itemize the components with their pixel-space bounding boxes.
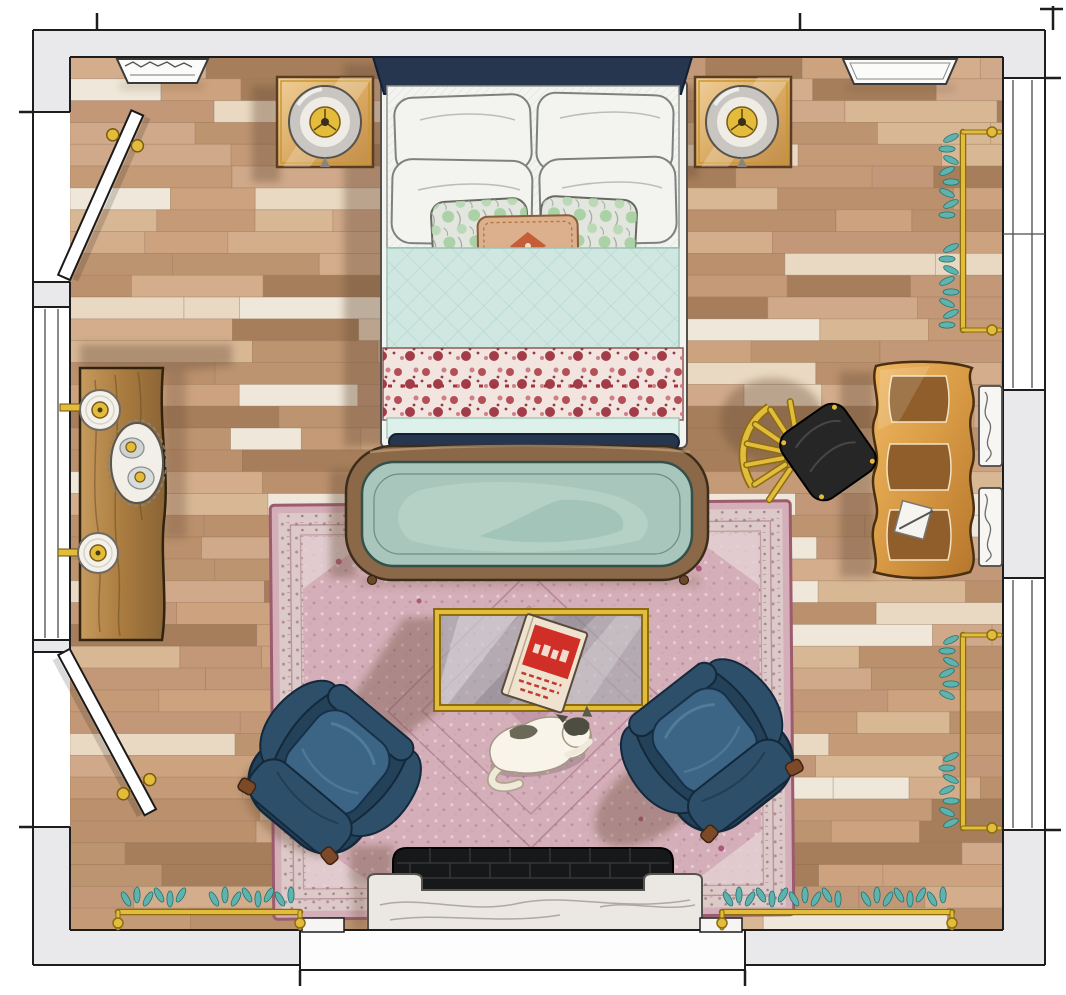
coffee-table: [437, 612, 645, 713]
floor-plank: [70, 821, 256, 843]
rail-knob: [987, 325, 997, 335]
floor-plank: [70, 319, 233, 341]
wall-left-2: [33, 282, 70, 307]
foliage-leaf: [939, 648, 955, 654]
bay-jamb-left: [302, 918, 344, 932]
wall-left-1: [33, 57, 70, 112]
floor-plank: [784, 712, 857, 734]
rail-knob: [987, 127, 997, 137]
floor-plank: [872, 166, 933, 188]
floor-plank: [980, 57, 1003, 79]
rail-knob: [987, 630, 997, 640]
floor-plank: [793, 843, 962, 865]
wall-shelf-right: [843, 59, 957, 84]
floor-plank: [70, 799, 260, 821]
floor-plank: [184, 297, 240, 319]
fireplace: [368, 848, 702, 930]
floor-plank: [145, 232, 228, 254]
foliage-leaf: [835, 891, 841, 907]
floor-plank: [845, 101, 997, 123]
foliage-leaf: [939, 146, 955, 152]
floor-plank: [751, 341, 880, 363]
foliage-leaf: [736, 887, 742, 903]
floor-plank: [70, 865, 162, 887]
bench: [346, 446, 708, 585]
floor-plank: [872, 668, 1004, 690]
floor-plank: [172, 253, 319, 275]
floor-plank: [818, 581, 965, 603]
floor-plank: [912, 210, 1003, 232]
floor-plank: [961, 232, 1003, 254]
floor-plank: [772, 232, 961, 254]
floor-plank: [131, 275, 263, 297]
floor-plank: [816, 755, 943, 777]
foliage-leaf: [939, 765, 955, 771]
floor-plank: [829, 734, 1003, 756]
window-right-upper: [1003, 80, 1045, 388]
decanter-stopper: [135, 472, 145, 482]
wall-bottom-2: [745, 930, 1003, 965]
foliage-leaf: [288, 887, 294, 903]
floor-plank: [883, 865, 1003, 887]
foliage-leaf: [939, 322, 955, 328]
rail-knob: [987, 823, 997, 833]
floor-plank: [831, 821, 919, 843]
floor-plank: [159, 581, 265, 603]
floor-plank: [736, 166, 873, 188]
floor-plank: [793, 799, 932, 821]
bench-foot: [368, 576, 377, 585]
floor-plank: [768, 297, 918, 319]
foliage-leaf: [802, 887, 808, 903]
floor-plank: [880, 341, 1003, 363]
floor-plank: [706, 57, 802, 79]
rail-knob: [947, 918, 957, 928]
floor-plank: [857, 712, 950, 734]
bracket-lower: [979, 488, 1002, 566]
foliage-leaf: [222, 887, 228, 903]
floor-plank: [180, 646, 262, 668]
floor-plank: [778, 188, 954, 210]
floor-plank: [231, 428, 302, 450]
foliage-leaf: [255, 891, 261, 907]
floor-plank: [962, 843, 1003, 865]
floor-plank: [70, 297, 184, 319]
floor-plank: [980, 777, 1003, 799]
window-left: [45, 309, 58, 638]
wall-top: [33, 30, 1045, 57]
floor-plank: [70, 144, 231, 166]
foliage-leaf: [943, 681, 959, 687]
bracket-upper: [979, 386, 1002, 466]
decanter-stopper: [126, 442, 136, 452]
wall-bottom-1: [70, 930, 300, 965]
window-right-lower: [1013, 580, 1032, 828]
foliage-leaf: [769, 891, 775, 907]
floor-plank: [170, 188, 255, 210]
floor-plank: [157, 210, 255, 232]
foliage-leaf: [874, 887, 880, 903]
foliage-leaf: [134, 887, 140, 903]
floor-plank: [255, 210, 333, 232]
floor-plank: [70, 843, 125, 865]
floor-plank: [798, 144, 941, 166]
foliage-leaf: [939, 256, 955, 262]
floor-plank: [950, 712, 1003, 734]
floor-plank: [876, 603, 1003, 625]
floor-plank: [785, 253, 936, 275]
fireplace-bay: [300, 930, 745, 970]
firebox: [393, 848, 673, 894]
floor-plank: [667, 363, 815, 385]
desk: [873, 362, 974, 578]
foliage-leaf: [167, 891, 173, 907]
foliage-leaf: [943, 179, 959, 185]
floor-plank: [833, 777, 909, 799]
foliage-leaf: [943, 289, 959, 295]
bench-foot: [680, 576, 689, 585]
foliage-leaf: [943, 798, 959, 804]
floor-plank: [70, 188, 170, 210]
foliage-leaf: [907, 891, 913, 907]
floor-plank: [966, 581, 1003, 603]
floor-plan-illustration: [0, 0, 1066, 995]
floor-plank: [239, 384, 358, 406]
wall-left-4: [33, 827, 70, 965]
floor-plank: [206, 57, 351, 79]
floor-plank: [233, 319, 359, 341]
wall-right-2: [1003, 390, 1045, 578]
nightstand-right: [695, 77, 791, 167]
nightstand-left: [277, 77, 373, 167]
floor-plank: [836, 210, 912, 232]
rail-knob: [717, 918, 727, 928]
floor-plank: [687, 275, 787, 297]
floor-plank: [820, 319, 929, 341]
floor-plank: [70, 646, 180, 668]
rail-knob: [113, 918, 123, 928]
rail-knob: [295, 918, 305, 928]
sconce-lamp-lower: [58, 533, 118, 573]
floor-plank: [859, 646, 1003, 668]
bed: [373, 57, 692, 450]
wall-left-3: [33, 640, 70, 652]
floor-plan-svg: [0, 0, 1066, 995]
foliage-leaf: [940, 887, 946, 903]
floor-plank: [819, 865, 883, 887]
floor-plank: [70, 166, 232, 188]
wall-right-3: [1003, 830, 1045, 965]
floor-plank: [177, 603, 275, 625]
foliage-leaf: [939, 212, 955, 218]
wall-right-1: [1003, 57, 1045, 78]
floor-plank: [787, 275, 910, 297]
wall-shelf-left: [117, 59, 208, 83]
